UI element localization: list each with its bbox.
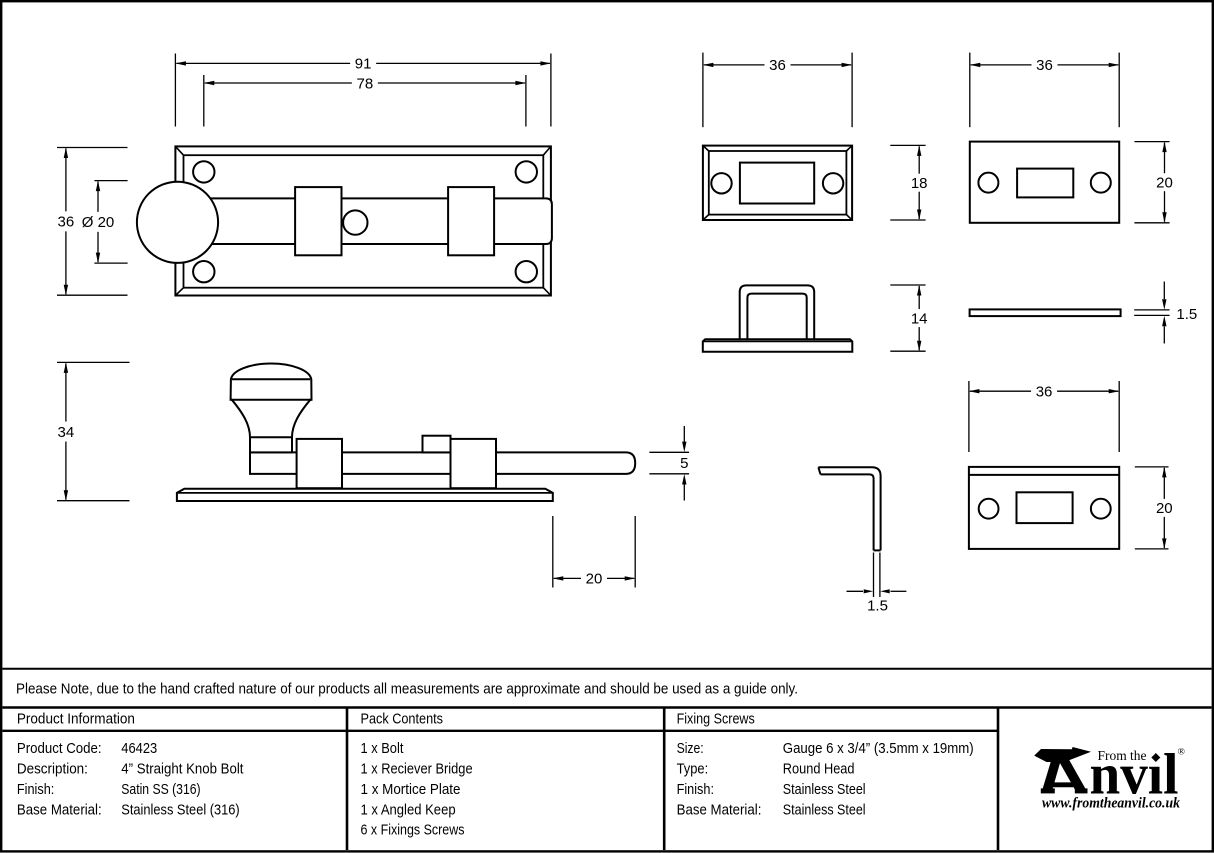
svg-text:Finish:: Finish: [17,781,54,798]
svg-text:36: 36 [58,214,75,231]
svg-text:Type:: Type: [677,760,709,777]
svg-text:1 x Reciever Bridge: 1 x Reciever Bridge [361,760,473,777]
svg-text:Description:: Description: [17,760,88,777]
svg-text:36: 36 [1036,57,1053,74]
svg-text:Ø 20: Ø 20 [82,214,115,231]
svg-text:20: 20 [1156,500,1173,517]
svg-text:Satin SS (316): Satin SS (316) [121,781,200,798]
svg-text:Product Information: Product Information [17,711,135,728]
svg-text:46423: 46423 [121,740,157,757]
svg-text:20: 20 [586,571,603,588]
svg-text:5: 5 [680,455,688,472]
svg-text:Pack Contents: Pack Contents [361,711,444,728]
svg-text:Gauge 6 x 3/4” (3.5mm x 19mm): Gauge 6 x 3/4” (3.5mm x 19mm) [783,740,974,757]
svg-text:1.5: 1.5 [867,597,888,614]
svg-text:1.5: 1.5 [1176,306,1197,323]
svg-text:4” Straight Knob Bolt: 4” Straight Knob Bolt [121,760,244,777]
svg-text:34: 34 [58,424,75,441]
svg-text:®: ® [1178,747,1186,758]
svg-text:Product Code:: Product Code: [17,740,102,757]
svg-text:91: 91 [355,56,372,73]
svg-text:Fixing Screws: Fixing Screws [677,711,755,728]
svg-text:18: 18 [911,175,928,192]
svg-text:14: 14 [911,310,928,327]
svg-text:20: 20 [1156,175,1173,192]
svg-text:Please Note, due to the hand c: Please Note, due to the hand crafted nat… [16,681,798,697]
svg-text:36: 36 [769,57,786,74]
svg-text:Base Material:: Base Material: [677,801,762,818]
svg-text:1 x Angled Keep: 1 x Angled Keep [361,801,456,818]
svg-text:78: 78 [357,75,374,92]
svg-text:1 x Bolt: 1 x Bolt [361,740,405,757]
svg-text:Round Head: Round Head [783,760,855,777]
svg-text:1 x Mortice Plate: 1 x Mortice Plate [361,781,461,798]
svg-text:Finish:: Finish: [677,781,714,798]
svg-text:Stainless Steel: Stainless Steel [783,801,866,818]
svg-text:Base Material:: Base Material: [17,801,102,818]
svg-text:Stainless Steel: Stainless Steel [783,781,866,798]
svg-text:Stainless Steel (316): Stainless Steel (316) [121,801,239,818]
svg-text:Size:: Size: [677,740,704,757]
svg-text:36: 36 [1036,384,1053,401]
svg-text:www.fromtheanvil.co.uk: www.fromtheanvil.co.uk [1042,796,1180,812]
svg-text:6 x Fixings Screws: 6 x Fixings Screws [361,822,465,839]
